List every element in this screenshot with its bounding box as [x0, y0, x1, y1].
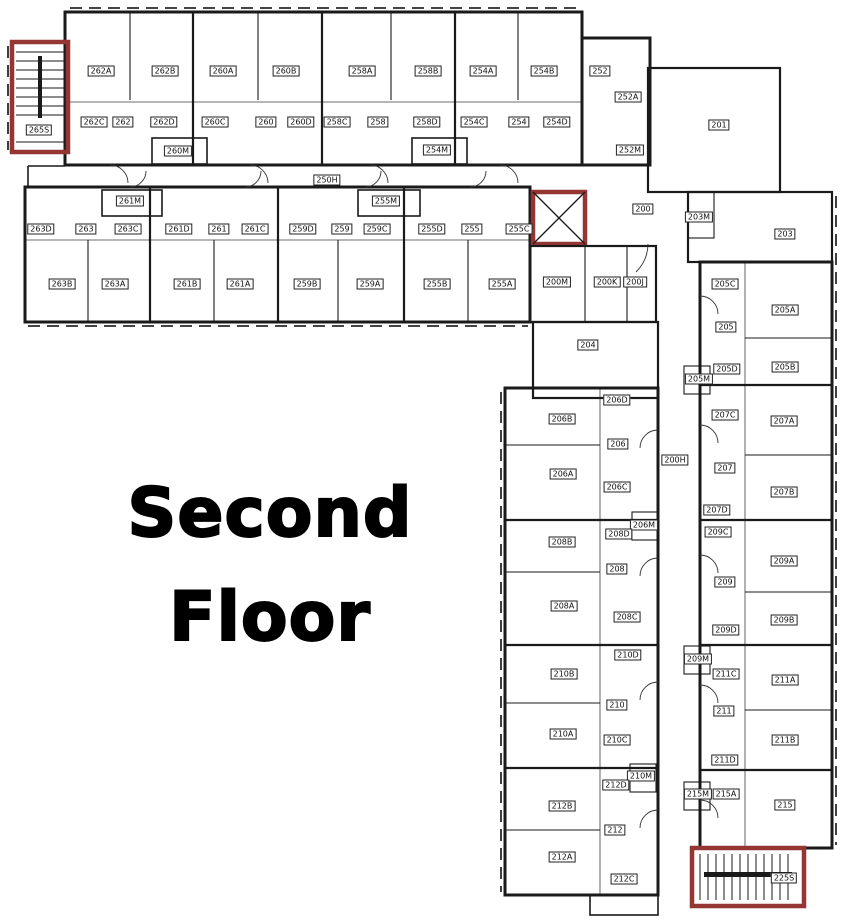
room-label-200: 200 — [632, 204, 653, 215]
room-label-259: 259 — [331, 224, 352, 235]
room-label-252a: 252A — [615, 92, 642, 103]
room-label-250h: 250H — [313, 175, 340, 186]
room-label-209m: 209M — [684, 654, 712, 665]
room-label-215m: 215M — [684, 789, 712, 800]
room-label-200j: 200J — [623, 277, 647, 288]
room-label-210a: 210A — [550, 729, 577, 740]
room-label-209: 209 — [714, 577, 735, 588]
room-label-209c: 209C — [705, 527, 732, 538]
room-label-211b: 211B — [772, 735, 799, 746]
room-label-215: 215 — [774, 800, 795, 811]
room-label-262: 262 — [112, 117, 133, 128]
room-label-200k: 200K — [594, 277, 621, 288]
room-label-212b: 212B — [549, 801, 576, 812]
room-label-211a: 211A — [772, 675, 799, 686]
room-label-259b: 259B — [294, 279, 321, 290]
room-label-261m: 261M — [116, 196, 144, 207]
room-label-209a: 209A — [771, 556, 798, 567]
room-label-207c: 207C — [712, 410, 739, 421]
room-label-260c: 260C — [202, 117, 229, 128]
room-label-252: 252 — [589, 66, 610, 77]
room-label-212d: 212D — [602, 780, 629, 791]
room-label-263b: 263B — [49, 279, 76, 290]
floor-title-line2: Floor — [110, 566, 430, 670]
room-label-210b: 210B — [551, 669, 578, 680]
room-label-262d: 262D — [150, 117, 177, 128]
room-label-206d: 206D — [603, 395, 630, 406]
room-label-210d: 210D — [614, 650, 641, 661]
room-label-254m: 254M — [423, 145, 451, 156]
room-label-255d: 255D — [418, 224, 445, 235]
labels-layer: 262A262B260A260B258A258B254A254B252262C2… — [0, 0, 841, 922]
room-label-200h: 200H — [661, 455, 688, 466]
room-label-203m: 203M — [685, 212, 713, 223]
room-label-212: 212 — [604, 825, 625, 836]
room-label-200m: 200M — [543, 277, 571, 288]
room-label-261b: 261B — [174, 279, 201, 290]
room-label-212a: 212A — [549, 852, 576, 863]
room-label-260: 260 — [255, 117, 276, 128]
room-label-210: 210 — [606, 700, 627, 711]
room-label-208b: 208B — [549, 537, 576, 548]
room-label-203: 203 — [774, 229, 795, 240]
room-label-225s: 225S — [771, 873, 797, 884]
room-label-215a: 215A — [713, 789, 740, 800]
room-label-259a: 259A — [357, 279, 384, 290]
room-label-205d: 205D — [713, 364, 740, 375]
room-label-263: 263 — [75, 224, 96, 235]
room-label-255b: 255B — [424, 279, 451, 290]
room-label-258: 258 — [367, 117, 388, 128]
room-label-209d: 209D — [712, 625, 739, 636]
room-label-254b: 254B — [531, 66, 558, 77]
room-label-258d: 258D — [413, 117, 440, 128]
floor-plan: 262A262B260A260B258A258B254A254B252262C2… — [0, 0, 841, 922]
room-label-210m: 210M — [627, 771, 655, 782]
room-label-262b: 262B — [152, 66, 179, 77]
room-label-261c: 261C — [242, 224, 269, 235]
room-label-259c: 259C — [364, 224, 391, 235]
floor-title: Second Floor — [110, 462, 430, 670]
room-label-261a: 261A — [227, 279, 254, 290]
room-label-263d: 263D — [27, 224, 54, 235]
room-label-258a: 258A — [349, 66, 376, 77]
room-label-205b: 205B — [772, 362, 799, 373]
floor-title-line1: Second — [110, 462, 430, 566]
room-label-263c: 263C — [115, 224, 142, 235]
room-label-208d: 208D — [605, 529, 632, 540]
room-label-258c: 258C — [324, 117, 351, 128]
room-label-205c: 205C — [712, 279, 739, 290]
room-label-208a: 208A — [551, 601, 578, 612]
room-label-260m: 260M — [164, 146, 192, 157]
room-label-262c: 262C — [81, 117, 108, 128]
room-label-211d: 211D — [711, 755, 738, 766]
room-label-252m: 252M — [616, 145, 644, 156]
room-label-206b: 206B — [549, 414, 576, 425]
room-label-255m: 255M — [372, 196, 400, 207]
room-label-204: 204 — [577, 340, 598, 351]
room-label-254d: 254D — [543, 117, 570, 128]
room-label-259d: 259D — [289, 224, 316, 235]
room-label-265s: 265S — [26, 125, 52, 136]
room-label-208c: 208C — [614, 612, 641, 623]
room-label-261d: 261D — [165, 224, 192, 235]
room-label-206a: 206A — [550, 469, 577, 480]
room-label-254: 254 — [508, 117, 529, 128]
room-label-261: 261 — [208, 224, 229, 235]
room-label-207b: 207B — [771, 487, 798, 498]
room-label-210c: 210C — [604, 735, 631, 746]
room-label-201: 201 — [708, 120, 729, 131]
room-label-260a: 260A — [210, 66, 237, 77]
room-label-255c: 255C — [506, 224, 533, 235]
room-label-211c: 211C — [713, 669, 740, 680]
room-label-260d: 260D — [287, 117, 314, 128]
room-label-212c: 212C — [611, 874, 638, 885]
room-label-205m: 205M — [685, 374, 713, 385]
room-label-207a: 207A — [771, 416, 798, 427]
room-label-255a: 255A — [489, 279, 516, 290]
room-label-254c: 254C — [461, 117, 488, 128]
room-label-205a: 205A — [772, 305, 799, 316]
room-label-209b: 209B — [771, 615, 798, 626]
room-label-207d: 207D — [703, 505, 730, 516]
room-label-206m: 206M — [630, 520, 658, 531]
room-label-260b: 260B — [273, 66, 300, 77]
room-label-205: 205 — [715, 322, 736, 333]
room-label-255: 255 — [461, 224, 482, 235]
room-label-211: 211 — [713, 706, 734, 717]
room-label-208: 208 — [606, 564, 627, 575]
room-label-262a: 262A — [88, 66, 115, 77]
room-label-258b: 258B — [415, 66, 442, 77]
room-label-263a: 263A — [102, 279, 129, 290]
room-label-206: 206 — [607, 439, 628, 450]
room-label-254a: 254A — [470, 66, 497, 77]
room-label-207: 207 — [714, 463, 735, 474]
room-label-206c: 206C — [604, 482, 631, 493]
